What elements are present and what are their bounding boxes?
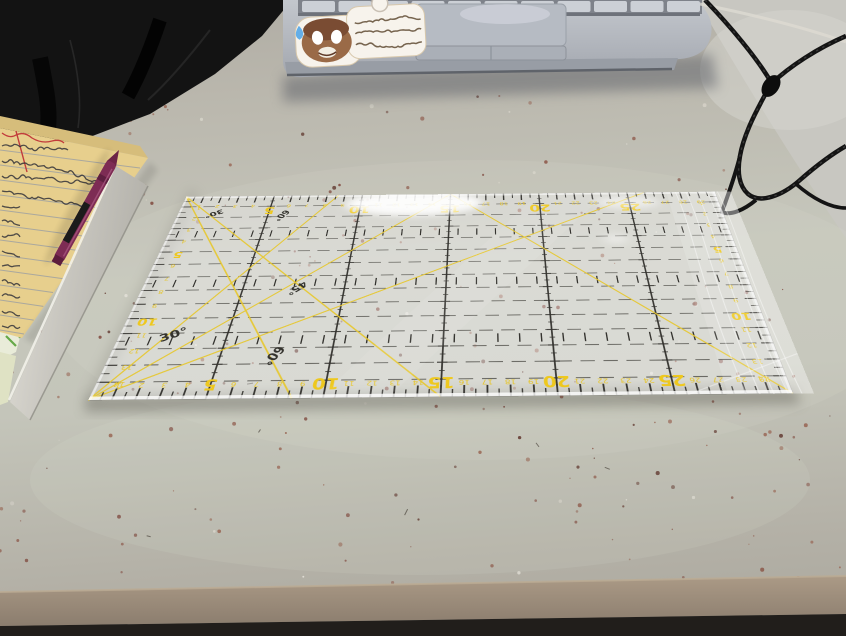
svg-text:22: 22 bbox=[597, 377, 609, 385]
laptop bbox=[283, 0, 718, 102]
svg-text:23: 23 bbox=[619, 376, 632, 384]
svg-text:25: 25 bbox=[656, 371, 687, 388]
svg-text:21: 21 bbox=[574, 377, 586, 385]
svg-text:27: 27 bbox=[660, 200, 671, 205]
desk-front-edge bbox=[0, 576, 846, 636]
svg-text:18: 18 bbox=[499, 201, 508, 206]
svg-text:24: 24 bbox=[642, 376, 655, 384]
svg-text:18: 18 bbox=[504, 378, 516, 386]
svg-text:19: 19 bbox=[517, 201, 526, 206]
svg-text:17: 17 bbox=[481, 378, 493, 386]
svg-text:17: 17 bbox=[481, 201, 490, 206]
quilting-ruler: 1122334455667788991010111112121313141415… bbox=[88, 191, 814, 400]
svg-text:19: 19 bbox=[527, 377, 539, 385]
trackpad bbox=[416, 4, 566, 60]
svg-text:14: 14 bbox=[412, 378, 424, 386]
svg-text:15: 15 bbox=[427, 373, 455, 391]
ruler-svg: 1122334455667788991010111112121313141415… bbox=[88, 191, 814, 400]
svg-text:20: 20 bbox=[542, 372, 571, 389]
desk-photo-scene: 1122334455667788991010111112121313141415… bbox=[0, 0, 846, 636]
svg-text:16: 16 bbox=[458, 378, 470, 386]
desk-sheen-2 bbox=[30, 385, 810, 575]
